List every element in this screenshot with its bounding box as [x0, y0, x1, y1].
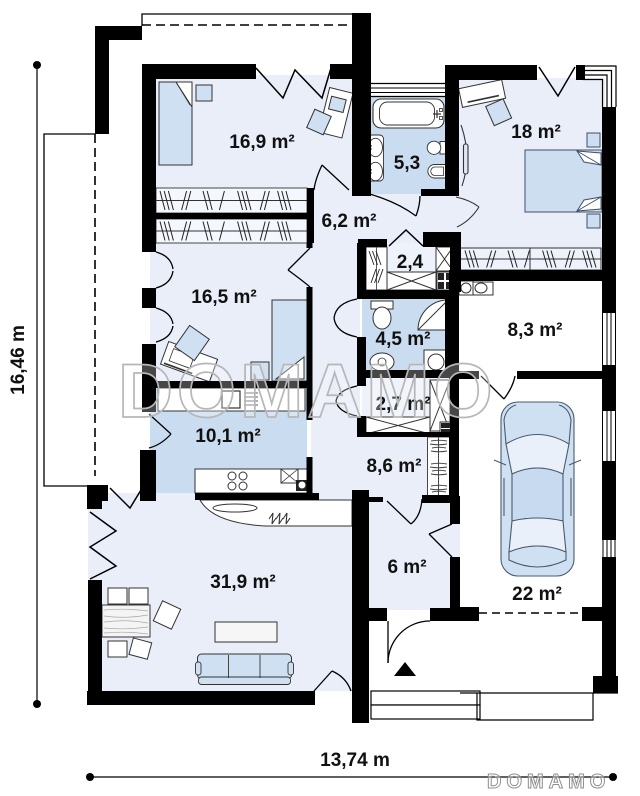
- svg-text:13,74 m: 13,74 m: [320, 750, 390, 771]
- svg-text:DOMAMO: DOMAMO: [118, 349, 497, 434]
- svg-text:31,9 m²: 31,9 m²: [210, 572, 275, 593]
- svg-text:4,5 m²: 4,5 m²: [376, 329, 431, 350]
- svg-text:18 m²: 18 m²: [511, 122, 561, 143]
- svg-text:6 m²: 6 m²: [387, 557, 426, 578]
- svg-text:22 m²: 22 m²: [512, 584, 562, 605]
- svg-text:8,6 m²: 8,6 m²: [367, 456, 422, 477]
- svg-text:8,3 m²: 8,3 m²: [508, 320, 563, 341]
- svg-text:2,4: 2,4: [397, 252, 424, 273]
- svg-text:16,46 m: 16,46 m: [8, 325, 29, 395]
- svg-text:6,2 m²: 6,2 m²: [322, 211, 377, 232]
- svg-text:5,3: 5,3: [394, 153, 420, 174]
- svg-text:DOMAMO: DOMAMO: [487, 771, 610, 793]
- svg-text:16,9 m²: 16,9 m²: [229, 132, 294, 153]
- svg-text:16,5 m²: 16,5 m²: [191, 287, 256, 308]
